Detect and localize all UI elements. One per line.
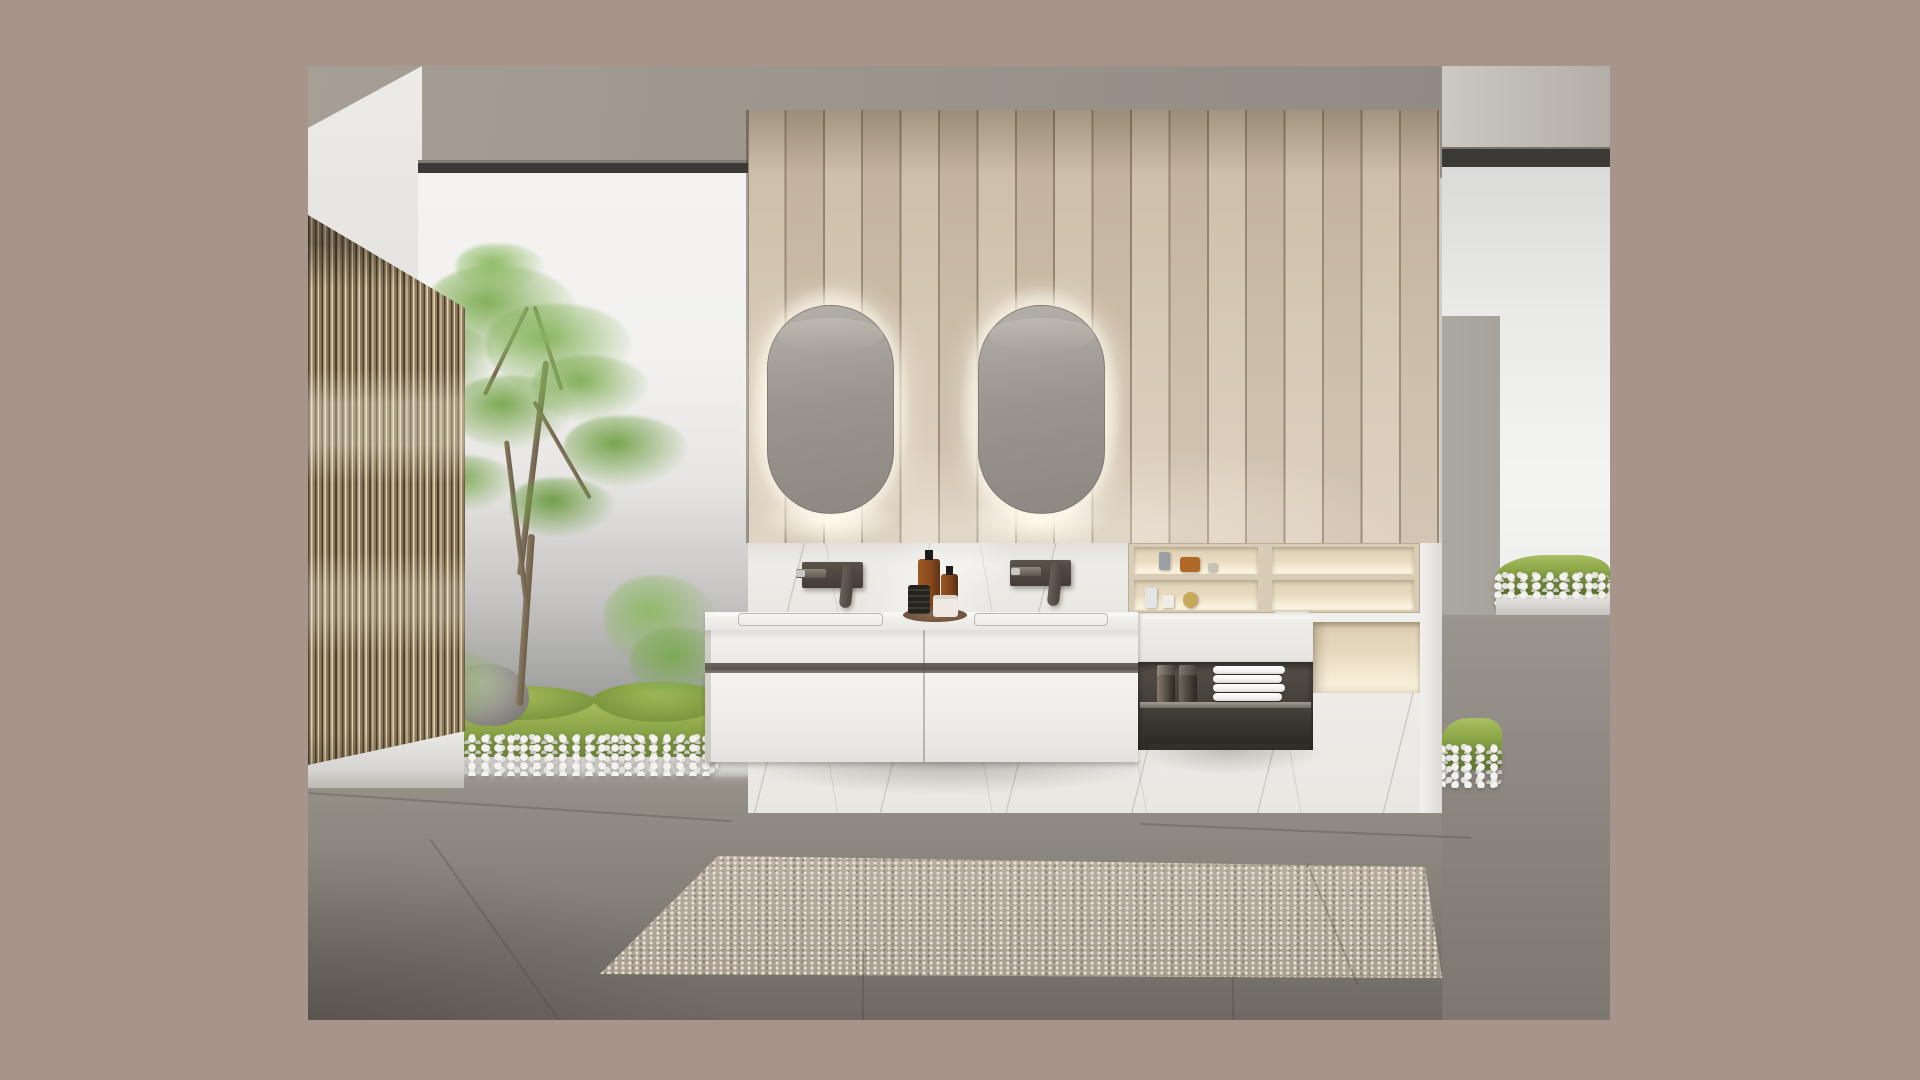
faucet-left-spout: [796, 569, 826, 578]
perfume-boxes-layer: [308, 66, 1610, 1020]
perfume-box: [1157, 665, 1175, 702]
wood-slat-screen: [308, 215, 465, 787]
cosmetic-jar-black: [908, 585, 930, 614]
bathroom-render-photo: [308, 66, 1610, 1020]
cosmetic-jar-white: [933, 595, 958, 617]
perfume-box: [1179, 665, 1197, 702]
faucet-right-spout: [1011, 567, 1041, 576]
